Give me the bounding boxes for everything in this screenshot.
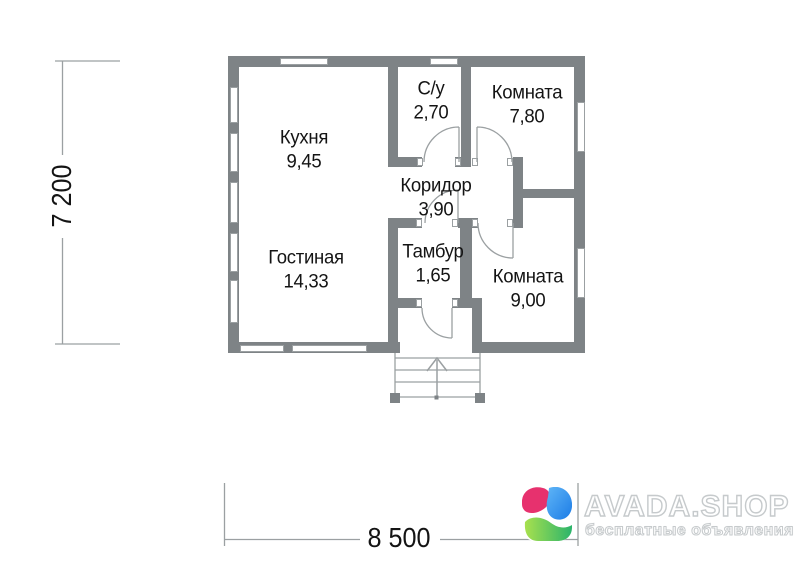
room-label-living-room: Гостиная 14,33 [268, 247, 343, 294]
door-arc-bedroom-2 [478, 223, 513, 258]
stair-post-right [475, 393, 485, 403]
plan-linework [0, 0, 800, 565]
room-label-kitchen: Кухня 9,45 [280, 127, 328, 174]
avada-logo-icon [522, 487, 572, 541]
room-name: Комната [493, 266, 564, 290]
room-name: С/у [414, 78, 449, 102]
dimension-label-width: 8 500 [367, 522, 430, 554]
stairs-direction-arrow [427, 358, 447, 397]
room-area: 3,90 [400, 198, 471, 222]
dimension-label-height: 7 200 [46, 164, 78, 227]
room-label-bedroom-1: Комната 7,80 [492, 82, 563, 129]
room-name: Тамбур [402, 241, 463, 265]
room-name: Коридор [400, 175, 471, 199]
watermark-tagline: бесплатные объявления [585, 522, 794, 540]
watermark-brand: AVADA.SHOP [584, 490, 790, 524]
room-label-corridor: Коридор 3,90 [400, 175, 471, 222]
room-label-vestibule: Тамбур 1,65 [402, 241, 463, 288]
room-area: 14,33 [268, 270, 343, 294]
floorplan-canvas: Кухня 9,45 С/у 2,70 Комната 7,80 Коридор… [0, 0, 800, 565]
door-arc-entrance [422, 308, 452, 338]
stairs-arrow-base-dot [435, 396, 439, 400]
stair-post-left [390, 393, 400, 403]
door-arc-bedroom-1 [477, 127, 512, 162]
room-name: Кухня [280, 127, 328, 151]
room-label-bedroom-2: Комната 9,00 [493, 266, 564, 313]
room-area: 7,80 [492, 105, 563, 129]
room-area: 9,00 [493, 289, 564, 313]
room-name: Комната [492, 82, 563, 106]
room-area: 1,65 [402, 264, 463, 288]
room-label-bathroom: С/у 2,70 [414, 78, 449, 125]
room-name: Гостиная [268, 247, 343, 271]
room-area: 9,45 [280, 150, 328, 174]
room-area: 2,70 [414, 101, 449, 125]
door-arc-bathroom [424, 127, 459, 162]
